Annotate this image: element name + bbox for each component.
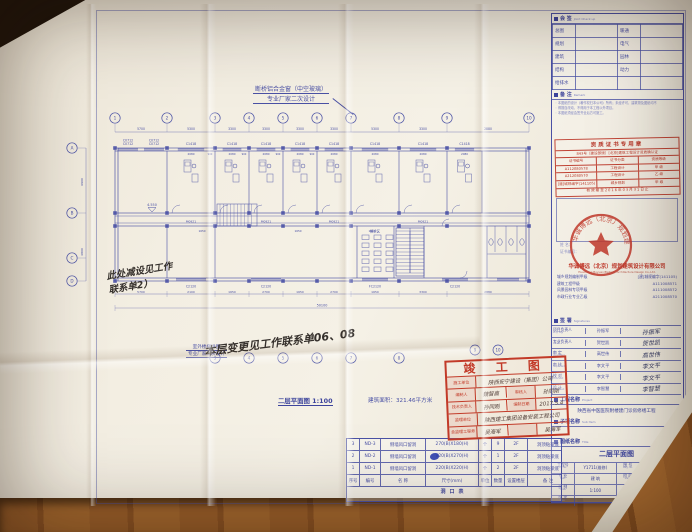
remark-title-en: Remark bbox=[574, 93, 586, 97]
svg-text:2700: 2700 bbox=[330, 290, 338, 294]
signatures-header: 签 署 Signatures bbox=[552, 316, 681, 326]
svg-text:1650: 1650 bbox=[371, 290, 379, 294]
subitem-header: 子项名称 Sub Item bbox=[552, 417, 681, 427]
svg-text:M0921: M0921 bbox=[329, 220, 339, 224]
stamp-label: 编制日期 bbox=[508, 399, 537, 412]
info-value: 建 筑 bbox=[575, 474, 617, 484]
svg-text:9: 9 bbox=[446, 116, 449, 121]
joint-cell bbox=[641, 51, 683, 64]
svg-text:5300: 5300 bbox=[371, 127, 379, 131]
qualification-name: 市政行业专业乙级 bbox=[557, 294, 587, 301]
signature-row: 设 计Designed李智慧李智慧 bbox=[552, 384, 681, 396]
signature-handwriting: 李文平 bbox=[621, 359, 681, 372]
holes-header-row: 序号编号名 称尺寸(mm)单位数量设置楼层备 注 bbox=[347, 475, 561, 487]
project-name: 陕西省中医医院附楼建门诊房修缮工程 bbox=[552, 405, 681, 417]
svg-text:2080: 2080 bbox=[330, 152, 337, 156]
joint-cell: 总图 bbox=[553, 25, 576, 38]
svg-text:C1418: C1418 bbox=[459, 142, 469, 146]
license-cell: 甲 级 bbox=[639, 179, 679, 186]
stamp-label: 监理单位 bbox=[449, 413, 478, 426]
joint-row: 结构动力 bbox=[553, 64, 683, 77]
svg-text:2080: 2080 bbox=[228, 152, 235, 156]
svg-text:FC2120: FC2120 bbox=[369, 285, 381, 289]
qualification-row: 风景园林专项甲级A111008572 bbox=[554, 287, 680, 294]
svg-text:C0712: C0712 bbox=[149, 142, 159, 146]
joint-cell: 结构 bbox=[553, 64, 576, 77]
signatures-title-en: Signatures bbox=[574, 319, 590, 323]
svg-text:M0921: M0921 bbox=[418, 220, 428, 224]
svg-text:1650: 1650 bbox=[198, 229, 205, 233]
joint-cell bbox=[576, 25, 618, 38]
svg-text:1650: 1650 bbox=[294, 229, 301, 233]
svg-text:C0712: C0712 bbox=[123, 138, 133, 142]
holes-cell: 个 bbox=[479, 439, 492, 450]
signature-role: 项目负责人Proj. Mgr bbox=[552, 328, 586, 334]
svg-text:1650: 1650 bbox=[296, 290, 304, 294]
svg-text:2080: 2080 bbox=[262, 152, 269, 156]
svg-text:2080: 2080 bbox=[461, 152, 468, 156]
svg-text:4: 4 bbox=[248, 356, 251, 361]
joint-cell: 园林 bbox=[617, 51, 640, 64]
joint-check-table: 总图暖通规划电气建筑园林结构动力给排水 bbox=[552, 24, 683, 90]
svg-text:3: 3 bbox=[214, 116, 217, 121]
sheet-title-en: Title bbox=[582, 440, 588, 444]
svg-text:6900: 6900 bbox=[80, 178, 84, 186]
as-built-stamp: 竣 工 图 施工单位陕西安宁建设（集团）公司编制人魏智高审核人孙同刚技术负责人孙… bbox=[444, 355, 569, 440]
window-note-line2: 专业厂家二次设计 bbox=[253, 94, 329, 104]
joint-row: 给排水 bbox=[553, 77, 683, 90]
subitem-title-en: Sub Item bbox=[582, 420, 596, 424]
joint-cell bbox=[617, 77, 640, 90]
holes-cell: 侧墙风口留洞 bbox=[381, 451, 426, 462]
stamp-label bbox=[509, 423, 538, 436]
signature-row: 项目负责人Proj. Mgr孙振军孙振军 bbox=[552, 326, 681, 338]
signatures-title: 签 署 bbox=[560, 317, 572, 324]
svg-text:6: 6 bbox=[316, 356, 319, 361]
section-square-icon bbox=[554, 319, 558, 323]
holes-cell: 洞顶贴梁底 bbox=[528, 439, 568, 450]
remark-lines: ◦ 本图纸的设计（著作权归本公司）所有；未经许可，建筑物及图纸均不◦ 得擅自改动… bbox=[552, 100, 683, 117]
joint-cell bbox=[576, 38, 618, 51]
signature-handwriting: 贺世凯 bbox=[621, 336, 681, 349]
svg-text:7: 7 bbox=[350, 356, 353, 361]
project-header: 工程名称 Project bbox=[552, 395, 681, 405]
signature-name: 李文平 bbox=[586, 363, 621, 369]
qualification-number: A211008570 bbox=[653, 294, 677, 301]
joint-cell bbox=[576, 51, 618, 64]
qualification-number: A111008572 bbox=[653, 287, 677, 294]
license-cell: A212080570 bbox=[556, 173, 597, 180]
window-spec-note: 断桥铝合金窗（中空玻璃） 专业厂家二次设计 bbox=[253, 84, 329, 104]
svg-text:C1418: C1418 bbox=[418, 142, 428, 146]
holes-cell: 2 bbox=[492, 463, 505, 474]
svg-text:9: 9 bbox=[474, 348, 477, 353]
joint-cell bbox=[641, 77, 683, 90]
joint-cell: 动力 bbox=[617, 64, 640, 77]
holes-data-row: 1ND-1侧墙风口留洞220(B)X220(H)个22F洞顶贴梁底 bbox=[347, 463, 561, 475]
svg-text:C1418: C1418 bbox=[329, 142, 339, 146]
joint-cell bbox=[576, 64, 618, 77]
joint-check-header: 会 签 Joint Check up bbox=[552, 14, 683, 24]
holes-cell: 270(B)X180(H) bbox=[426, 439, 479, 450]
svg-text:5: 5 bbox=[282, 116, 285, 121]
svg-text:3300: 3300 bbox=[262, 127, 270, 131]
license-cell: 城乡规划 bbox=[598, 180, 639, 187]
svg-text:10: 10 bbox=[495, 348, 501, 353]
stamp-handwritten-value: 吴海军 bbox=[477, 424, 509, 438]
remark-header: 备 注 Remark bbox=[552, 90, 683, 100]
svg-text:900: 900 bbox=[208, 152, 213, 156]
svg-text:2880: 2880 bbox=[484, 290, 492, 294]
license-header-cell: 证书编号 bbox=[556, 158, 597, 165]
svg-text:C2120: C2120 bbox=[261, 285, 271, 289]
stamp-label: 审核人 bbox=[507, 386, 536, 399]
svg-text:C1418: C1418 bbox=[227, 142, 237, 146]
svg-text:7: 7 bbox=[350, 116, 353, 121]
joint-cell: 规划 bbox=[553, 38, 576, 51]
holes-cell: 备 注 bbox=[528, 475, 568, 486]
stamp-handwritten-value: 孙同刚 bbox=[535, 384, 566, 397]
svg-text:M0921: M0921 bbox=[261, 220, 271, 224]
svg-text:C1418: C1418 bbox=[295, 142, 305, 146]
joint-check-title-en: Joint Check up bbox=[574, 17, 596, 21]
info-value: Y1711(维修) bbox=[575, 463, 617, 473]
joint-cell: 电气 bbox=[617, 38, 640, 51]
holes-cell: ND-2 bbox=[360, 451, 381, 462]
company-round-seal-icon: 华诚博远（北京）规划建筑设计有限公司 bbox=[566, 210, 636, 280]
joint-check-title: 会 签 bbox=[560, 15, 572, 22]
section-square-icon bbox=[554, 17, 558, 21]
stamp-label: 编制人 bbox=[448, 389, 477, 402]
svg-text:B: B bbox=[71, 211, 74, 216]
qualification-row: 市政行业专业乙级A211008570 bbox=[554, 294, 680, 301]
qualification-row: 建筑工程甲级A111008571 bbox=[554, 281, 680, 288]
joint-cell: 建筑 bbox=[553, 51, 576, 64]
stamp-label: 施工单位 bbox=[447, 376, 476, 389]
holes-data-row: 2ND-2侧墙风口留洞820(B)X270(H)个12F洞顶贴梁底 bbox=[347, 451, 561, 463]
area-text: 建筑面积：321.46平方米 bbox=[368, 396, 432, 404]
holes-cell: 个 bbox=[479, 463, 492, 474]
svg-text:10: 10 bbox=[526, 116, 532, 121]
svg-text:50100: 50100 bbox=[317, 304, 328, 308]
remark-title: 备 注 bbox=[560, 91, 572, 98]
joint-table: 总图暖通规划电气建筑园林结构动力给排水 bbox=[552, 24, 683, 90]
license-rows: 证书编号证书分类资质等级A112080578工程设计甲 级A212080570工… bbox=[556, 156, 680, 189]
holes-cell: 2F bbox=[505, 463, 528, 474]
svg-text:900: 900 bbox=[276, 152, 281, 156]
holes-cell: 洞顶贴梁底 bbox=[528, 463, 568, 474]
holes-cell: 个 bbox=[479, 451, 492, 462]
svg-text:D: D bbox=[70, 279, 73, 284]
svg-text:4800: 4800 bbox=[80, 248, 84, 256]
svg-text:5700: 5700 bbox=[137, 127, 145, 131]
holes-cell: 编号 bbox=[360, 475, 381, 486]
joint-cell bbox=[641, 25, 683, 38]
joint-cell bbox=[641, 64, 683, 77]
project-title-en: Project bbox=[582, 398, 592, 402]
qualification-name: 建筑工程甲级 bbox=[557, 281, 580, 288]
signature-row: 审 核Inspected李文平李文平 bbox=[552, 361, 681, 373]
window-note-line1: 断桥铝合金窗（中空玻璃） bbox=[253, 84, 329, 94]
svg-text:2080: 2080 bbox=[187, 152, 194, 156]
svg-text:5: 5 bbox=[282, 356, 285, 361]
holes-cell: 1 bbox=[492, 451, 505, 462]
svg-text:3300: 3300 bbox=[330, 127, 338, 131]
holes-cell: 3 bbox=[347, 439, 360, 450]
svg-text:2080: 2080 bbox=[419, 152, 426, 156]
joint-cell: 给排水 bbox=[553, 77, 576, 90]
holes-cell: 名 称 bbox=[381, 475, 426, 486]
holes-cell: 侧墙风口留洞 bbox=[381, 463, 426, 474]
license-cell: 工程设计 bbox=[597, 172, 638, 179]
qualification-number: A111008571 bbox=[653, 281, 677, 288]
svg-text:2700: 2700 bbox=[262, 290, 270, 294]
photo-of-blueprint: 1234567891057005300330033003300330053003… bbox=[0, 0, 692, 532]
as-built-stamp-table: 施工单位陕西安宁建设（集团）公司编制人魏智高审核人孙同刚技术负责人孙同刚编制日期… bbox=[447, 372, 568, 438]
svg-text:2: 2 bbox=[166, 116, 169, 121]
svg-text:6: 6 bbox=[316, 116, 319, 121]
holes-cell: ND-1 bbox=[360, 463, 381, 474]
stamp-handwritten-value: 孙同刚 bbox=[476, 399, 508, 413]
signature-name: 高世伟 bbox=[586, 351, 621, 357]
info-value: 1:100 bbox=[575, 485, 617, 495]
section-square-icon bbox=[554, 93, 558, 97]
svg-text:900: 900 bbox=[310, 152, 315, 156]
signature-name: 李文平 bbox=[586, 374, 621, 380]
holes-cell: 数量 bbox=[492, 475, 505, 486]
svg-text:3300: 3300 bbox=[228, 127, 236, 131]
joint-cell bbox=[576, 77, 618, 90]
svg-text:4: 4 bbox=[248, 116, 251, 121]
stamp-label: 总监理工程师 bbox=[449, 426, 478, 439]
license-stamp: 资质证书专用章 843号（建设部颁）[北京]建筑工程设计资质确认证 证书编号证书… bbox=[554, 137, 680, 198]
signature-role-en: Chief bbox=[553, 343, 585, 345]
holes-cell: 设置楼层 bbox=[505, 475, 528, 486]
svg-text:M0921: M0921 bbox=[186, 220, 196, 224]
holes-data-row: 3ND-3侧墙风口留洞270(B)X180(H)个92F洞顶贴梁底 bbox=[347, 439, 561, 451]
holes-cell: 尺寸(mm) bbox=[426, 475, 479, 486]
svg-text:C1418: C1418 bbox=[186, 142, 196, 146]
svg-text:候诊区: 候诊区 bbox=[370, 229, 381, 234]
holes-cell: 2F bbox=[505, 451, 528, 462]
svg-text:C1418: C1418 bbox=[370, 142, 380, 146]
holes-cell: 9 bbox=[492, 439, 505, 450]
svg-text:8: 8 bbox=[398, 116, 401, 121]
license-cell: [建]城规编字(141105) bbox=[556, 180, 597, 187]
signature-row: 专业负责人Chief贺世凯贺世凯 bbox=[552, 338, 681, 350]
svg-text:1650: 1650 bbox=[228, 290, 236, 294]
holes-table-title: 洞口表 bbox=[347, 487, 561, 496]
joint-cell: 暖通 bbox=[617, 25, 640, 38]
signature-name: 孙振军 bbox=[586, 328, 621, 334]
remark-line: ◦ 本图纸须经会签齐全后方可施工。 bbox=[555, 111, 680, 116]
license-header-cell: 资质等级 bbox=[638, 156, 678, 163]
holes-cell: 2F bbox=[505, 439, 528, 450]
svg-text:3300: 3300 bbox=[296, 127, 304, 131]
svg-text:C: C bbox=[71, 256, 74, 261]
signature-name: 李智慧 bbox=[586, 386, 621, 392]
svg-text:2880: 2880 bbox=[484, 127, 492, 131]
license-footer: 有效期至2016年03月31日止 bbox=[556, 186, 679, 195]
svg-text:4.550: 4.550 bbox=[147, 203, 157, 207]
svg-text:C1418: C1418 bbox=[261, 142, 271, 146]
signature-rows: 项目负责人Proj. Mgr孙振军孙振军专业负责人Chief贺世凯贺世凯审 定A… bbox=[552, 326, 681, 395]
svg-text:C2120: C2120 bbox=[450, 285, 460, 289]
svg-text:8: 8 bbox=[398, 356, 401, 361]
holes-cell: 侧墙风口留洞 bbox=[381, 439, 426, 450]
svg-text:C0712: C0712 bbox=[123, 142, 133, 146]
license-header-cell: 证书分类 bbox=[597, 157, 638, 164]
svg-text:3300: 3300 bbox=[419, 127, 427, 131]
holes-cell: 单位 bbox=[479, 475, 492, 486]
holes-cell: 洞顶贴梁底 bbox=[528, 451, 568, 462]
qualification-name: 风景园林专项甲级 bbox=[557, 287, 587, 294]
holes-cell: 2 bbox=[347, 451, 360, 462]
holes-rows: 3ND-3侧墙风口留洞270(B)X180(H)个92F洞顶贴梁底2ND-2侧墙… bbox=[347, 439, 561, 487]
holes-cell: 1 bbox=[347, 463, 360, 474]
svg-text:C0712: C0712 bbox=[149, 138, 159, 142]
svg-text:2080: 2080 bbox=[371, 152, 378, 156]
signature-name: 贺世凯 bbox=[586, 340, 621, 346]
stamp-handwritten-value: 魏智高 bbox=[476, 387, 508, 401]
plan-title: 二层平面图 1:100 bbox=[278, 396, 333, 406]
svg-text:900: 900 bbox=[242, 152, 247, 156]
signature-row: 审 定Approved高世伟高世伟 bbox=[552, 349, 681, 361]
signature-handwriting: 李智慧 bbox=[621, 382, 681, 395]
license-cell: 工程设计 bbox=[597, 164, 638, 171]
svg-text:C2120: C2120 bbox=[186, 285, 196, 289]
license-cell: 甲 级 bbox=[639, 163, 679, 170]
signature-role-en: Proj. Mgr bbox=[553, 332, 585, 334]
svg-text:5300: 5300 bbox=[187, 127, 195, 131]
signature-role: 专业负责人Chief bbox=[552, 340, 586, 346]
qualification-number: [建]城规编字(141105) bbox=[638, 274, 677, 281]
joint-row: 建筑园林 bbox=[553, 51, 683, 64]
svg-text:A: A bbox=[71, 146, 74, 151]
joint-row: 规划电气 bbox=[553, 38, 683, 51]
stamp-handwritten-value: 吴海军 bbox=[537, 422, 568, 435]
license-cell: A112080578 bbox=[556, 165, 597, 172]
holes-schedule-table: 3ND-3侧墙风口留洞270(B)X180(H)个92F洞顶贴梁底2ND-2侧墙… bbox=[346, 438, 562, 502]
joint-cell bbox=[641, 38, 683, 51]
signature-row: 校 对Checked李文平李文平 bbox=[552, 372, 681, 384]
license-cell: 乙 级 bbox=[639, 171, 679, 178]
svg-text:2100: 2100 bbox=[187, 290, 195, 294]
stamp-label: 技术负责人 bbox=[448, 401, 477, 414]
joint-row: 总图暖通 bbox=[553, 25, 683, 38]
holes-cell: 序号 bbox=[347, 475, 360, 486]
svg-text:1: 1 bbox=[114, 116, 117, 121]
svg-text:3300: 3300 bbox=[419, 290, 427, 294]
holes-cell: ND-3 bbox=[360, 439, 381, 450]
holes-cell: 220(B)X220(H) bbox=[426, 463, 479, 474]
svg-text:2080: 2080 bbox=[296, 152, 303, 156]
